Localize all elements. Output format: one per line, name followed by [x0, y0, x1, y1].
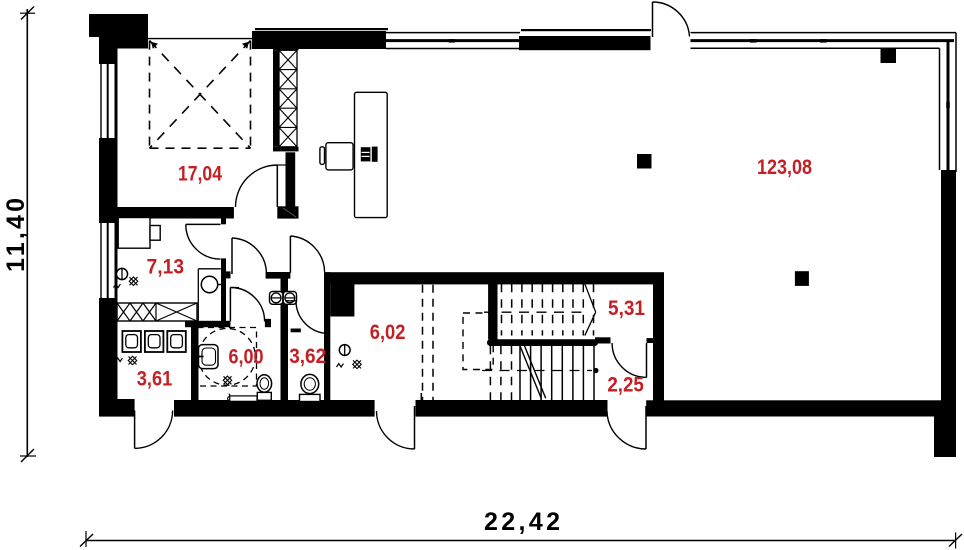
svg-text:6,00: 6,00 [229, 346, 264, 369]
svg-text:7,13: 7,13 [147, 256, 185, 279]
svg-text:17,04: 17,04 [178, 163, 222, 186]
svg-text:6,02: 6,02 [370, 321, 406, 344]
svg-text:3,62: 3,62 [289, 345, 326, 368]
svg-text:22,42: 22,42 [484, 508, 560, 536]
svg-text:123,08: 123,08 [757, 156, 812, 179]
svg-text:3,61: 3,61 [137, 368, 173, 391]
svg-text:2,25: 2,25 [607, 374, 644, 397]
svg-text:5,31: 5,31 [608, 297, 645, 320]
svg-text:11,40: 11,40 [2, 198, 30, 272]
